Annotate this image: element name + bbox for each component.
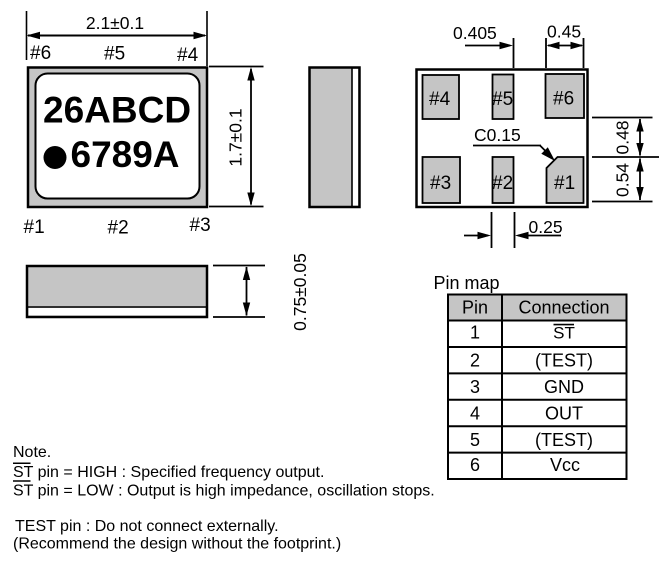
svg-text:#4: #4 — [429, 89, 451, 110]
svg-text:GND: GND — [544, 377, 584, 397]
svg-text:1: 1 — [470, 323, 480, 343]
svg-text:#1: #1 — [554, 173, 575, 194]
svg-text:#5: #5 — [104, 44, 125, 65]
svg-text:2.1±0.1: 2.1±0.1 — [86, 13, 144, 33]
svg-text:ST pin = HIGH : Specified freq: ST pin = HIGH : Specified frequency outp… — [13, 464, 324, 481]
svg-text:#2: #2 — [492, 173, 513, 194]
svg-text:Pin map: Pin map — [434, 273, 500, 293]
svg-text:ST pin = LOW : Output is high: ST pin = LOW : Output is high impedance,… — [13, 483, 435, 500]
svg-text:0.48: 0.48 — [613, 120, 633, 154]
svg-text:0.405: 0.405 — [453, 23, 497, 43]
svg-text:1.7±0.1: 1.7±0.1 — [226, 108, 246, 166]
svg-text:0.25: 0.25 — [529, 217, 563, 237]
svg-text:#1: #1 — [24, 217, 45, 238]
svg-text:Vcc: Vcc — [550, 455, 580, 475]
svg-text:5: 5 — [470, 430, 480, 450]
svg-text:26ABCD: 26ABCD — [43, 90, 191, 131]
svg-text:4: 4 — [470, 403, 480, 423]
svg-text:#6: #6 — [30, 43, 51, 64]
svg-text:0.45: 0.45 — [547, 22, 581, 42]
svg-text:#3: #3 — [430, 173, 451, 194]
svg-text:6789A: 6789A — [71, 134, 180, 175]
svg-text:TEST pin : Do not connect exte: TEST pin : Do not connect externally. — [15, 518, 279, 535]
svg-text:#5: #5 — [492, 89, 513, 110]
svg-text:Connection: Connection — [518, 298, 609, 318]
svg-text:ST: ST — [553, 324, 575, 343]
svg-text:#4: #4 — [177, 45, 199, 66]
svg-text:#6: #6 — [553, 89, 574, 110]
svg-text:6: 6 — [470, 455, 480, 475]
svg-text:2: 2 — [470, 351, 480, 371]
svg-text:Pin: Pin — [462, 298, 488, 318]
svg-text:Note.: Note. — [13, 444, 51, 461]
svg-text:C0.15: C0.15 — [474, 125, 521, 145]
svg-text:(TEST): (TEST) — [535, 430, 593, 450]
svg-text:3: 3 — [470, 377, 480, 397]
svg-text:(Recommend the design without: (Recommend the design without the footpr… — [13, 536, 341, 553]
svg-text:(TEST): (TEST) — [535, 351, 593, 371]
svg-text:#2: #2 — [108, 218, 129, 239]
svg-text:#3: #3 — [190, 215, 211, 236]
svg-text:0.75±0.05: 0.75±0.05 — [290, 253, 310, 331]
svg-text:OUT: OUT — [545, 403, 583, 423]
svg-text:0.54: 0.54 — [613, 163, 633, 197]
